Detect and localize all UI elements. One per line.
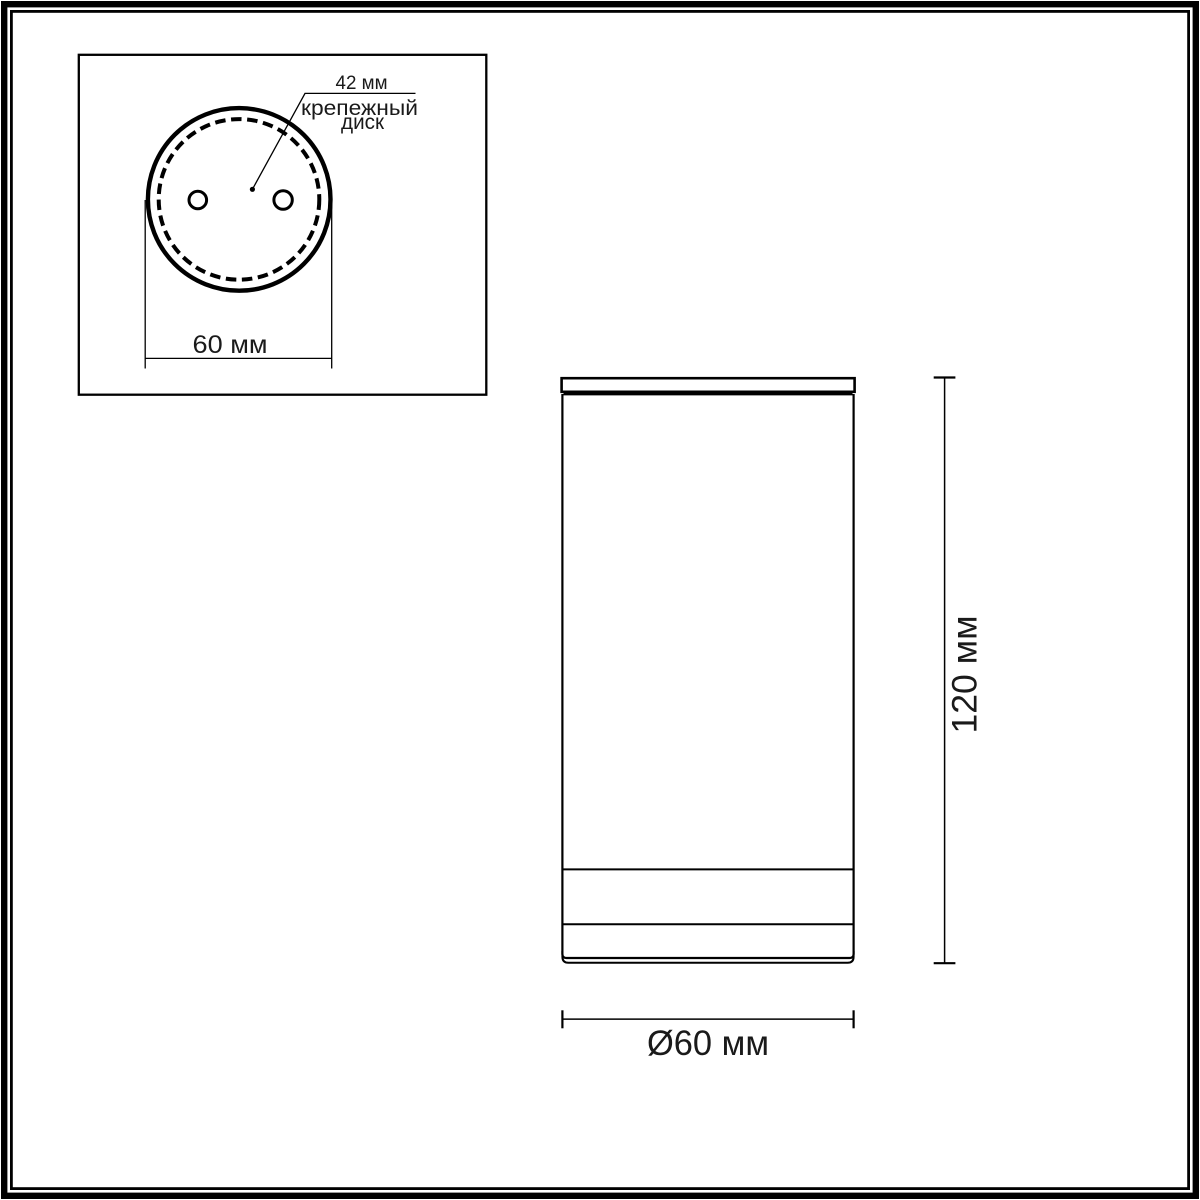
svg-text:Ø60 мм: Ø60 мм [647, 1024, 769, 1063]
svg-text:диск: диск [341, 111, 385, 134]
svg-text:60 мм: 60 мм [193, 331, 268, 359]
svg-text:120 мм: 120 мм [945, 616, 985, 734]
svg-text:42 мм: 42 мм [336, 73, 388, 94]
